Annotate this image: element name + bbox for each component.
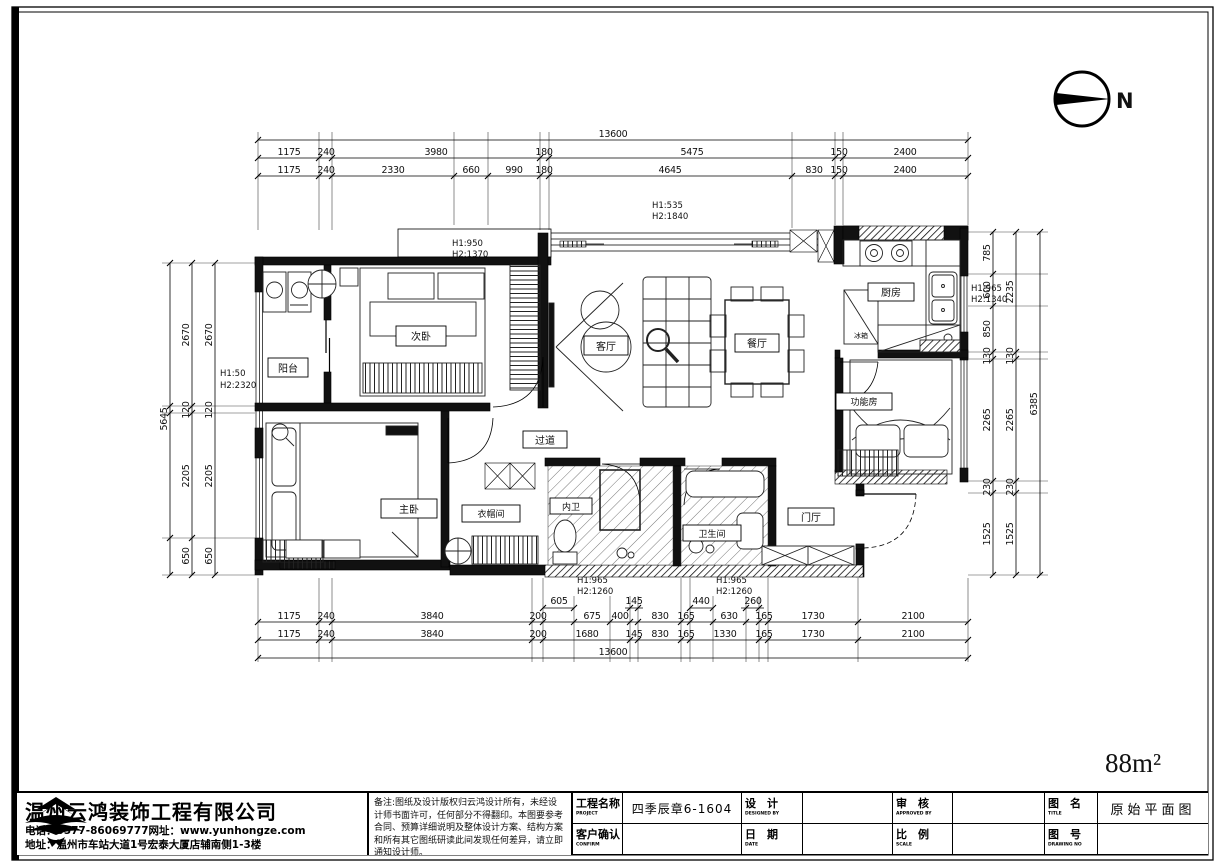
svg-text:850: 850	[982, 320, 993, 337]
svg-text:2205: 2205	[204, 464, 215, 487]
confirm-label-cell: 客户确认CONFIRM	[573, 824, 623, 855]
svg-text:H1:950: H1:950	[452, 239, 483, 249]
svg-text:1730: 1730	[802, 629, 825, 640]
svg-text:2670: 2670	[204, 323, 215, 346]
svg-text:主卧: 主卧	[399, 503, 419, 516]
drawno-value-cell	[1098, 824, 1208, 855]
svg-text:1525: 1525	[1005, 522, 1016, 545]
svg-text:1175: 1175	[278, 165, 301, 176]
svg-text:1175: 1175	[278, 147, 301, 158]
svg-text:1680: 1680	[576, 629, 599, 640]
title-block-grid: 工程名称PROJECT 四季辰章6-1604 设 计DESIGNED BY 审 …	[573, 793, 1208, 855]
svg-text:过道: 过道	[535, 434, 555, 447]
svg-text:650: 650	[181, 547, 192, 564]
svg-text:H2:2320: H2:2320	[220, 381, 256, 391]
svg-text:H2:1260: H2:1260	[577, 587, 613, 597]
svg-text:功能房: 功能房	[850, 396, 877, 408]
north-label: N	[1116, 89, 1134, 113]
svg-text:餐厅: 餐厅	[747, 337, 767, 350]
design-label-cell: 设 计DESIGNED BY	[742, 793, 803, 824]
svg-text:1175: 1175	[278, 611, 301, 622]
svg-text:165: 165	[755, 611, 772, 622]
magnifier-icon	[647, 329, 678, 362]
dim-top-total: 13600	[599, 129, 628, 140]
entry-door-swing	[864, 494, 916, 548]
project-value-cell: 四季辰章6-1604	[623, 793, 742, 824]
tv-unit	[549, 303, 554, 387]
svg-text:2330: 2330	[382, 165, 405, 176]
svg-text:440: 440	[692, 596, 709, 607]
svg-text:830: 830	[805, 165, 822, 176]
room-label-master: 主卧	[381, 499, 437, 518]
svg-text:240: 240	[317, 611, 334, 622]
svg-text:H1:965: H1:965	[971, 284, 1002, 294]
svg-text:150: 150	[830, 165, 847, 176]
svg-text:厨房: 厨房	[881, 286, 901, 299]
svg-text:1175: 1175	[278, 629, 301, 640]
svg-text:200: 200	[529, 629, 546, 640]
svg-text:2265: 2265	[1005, 408, 1016, 431]
room-label-foyer: 门厅	[788, 508, 834, 525]
svg-text:客厅: 客厅	[596, 340, 616, 353]
cloakroom-fixtures	[445, 536, 538, 564]
svg-text:130: 130	[1005, 347, 1016, 364]
room-labels: 阳台 次卧 客厅 餐厅 厨房 冰箱 功能房 过道 主卧 衣帽间 内卫 卫生间 门…	[268, 283, 914, 541]
svg-text:675: 675	[583, 611, 600, 622]
svg-text:145: 145	[625, 596, 642, 607]
drawing-sheet: N 13600 1175240 3980180 5475150 2400 117…	[0, 0, 1226, 867]
living-room-furniture	[549, 277, 711, 411]
scale-value-cell	[953, 824, 1045, 855]
company-logo	[17, 793, 95, 849]
svg-text:1525: 1525	[982, 522, 993, 545]
svg-text:120: 120	[181, 401, 192, 418]
svg-text:3840: 3840	[421, 629, 444, 640]
title-value-cell: 原始平面图	[1098, 793, 1208, 824]
svg-text:次卧: 次卧	[411, 330, 431, 343]
svg-text:165: 165	[677, 629, 694, 640]
room-label-bathroom: 卫生间	[683, 525, 741, 541]
date-label-cell: 日 期DATE	[742, 824, 803, 855]
room-label-kitchen: 厨房	[868, 283, 914, 301]
approve-label-cell: 审 核APPROVED BY	[893, 793, 953, 824]
svg-text:230: 230	[1005, 478, 1016, 495]
svg-text:门厅: 门厅	[801, 511, 821, 524]
svg-text:180: 180	[535, 165, 552, 176]
svg-text:165: 165	[677, 611, 694, 622]
svg-text:3980: 3980	[425, 147, 448, 158]
svg-text:H1:535: H1:535	[652, 201, 683, 211]
svg-text:H1:965: H1:965	[577, 576, 608, 586]
project-label-cell: 工程名称PROJECT	[573, 793, 623, 824]
drawing-notes: 备注:图纸及设计版权归云鸿设计所有，未经设计师书面许可，任何部分不得翻印。本图要…	[367, 793, 573, 855]
svg-text:180: 180	[535, 147, 552, 158]
room-label-dining: 餐厅	[735, 334, 779, 352]
svg-text:2400: 2400	[894, 147, 917, 158]
room-label-master-bath: 内卫	[550, 498, 592, 514]
svg-text:5475: 5475	[681, 147, 704, 158]
room-label-balcony: 阳台	[268, 358, 308, 377]
scale-label-cell: 比 例SCALE	[893, 824, 953, 855]
svg-text:605: 605	[550, 596, 567, 607]
room-label-bedroom2: 次卧	[396, 326, 446, 346]
master-bed	[266, 423, 418, 558]
svg-text:165: 165	[755, 629, 772, 640]
svg-text:2265: 2265	[982, 408, 993, 431]
svg-text:240: 240	[317, 629, 334, 640]
bedroom2-wardrobe	[510, 265, 540, 390]
svg-text:2100: 2100	[902, 629, 925, 640]
drawno-label-cell: 图 号DRAWING NO	[1045, 824, 1098, 855]
svg-text:785: 785	[982, 244, 993, 261]
svg-text:H2:1260: H2:1260	[716, 587, 752, 597]
svg-text:830: 830	[651, 629, 668, 640]
svg-text:145: 145	[625, 629, 642, 640]
floor-plan-canvas: N 13600 1175240 3980180 5475150 2400 117…	[0, 0, 1226, 867]
confirm-value-cell	[623, 824, 742, 855]
room-label-function: 功能房	[836, 393, 892, 410]
svg-text:2205: 2205	[181, 464, 192, 487]
svg-text:1730: 1730	[802, 611, 825, 622]
sofa	[643, 277, 711, 407]
foyer-cabinet	[762, 546, 854, 565]
approve-value-cell	[953, 793, 1045, 824]
svg-text:卫生间: 卫生间	[698, 528, 725, 540]
svg-text:240: 240	[317, 147, 334, 158]
svg-text:260: 260	[744, 596, 761, 607]
dim-left-total: 5645	[159, 407, 170, 430]
fridge-label: 冰箱	[854, 331, 868, 340]
svg-text:830: 830	[651, 611, 668, 622]
room-label-cloakroom: 衣帽间	[462, 505, 520, 522]
svg-text:650: 650	[204, 547, 215, 564]
company-section: 温州云鸿装饰工程有限公司 电话：0577-86069777网址：www.yunh…	[17, 793, 367, 855]
north-compass: N	[1055, 72, 1134, 126]
dim-right-total: 6385	[1029, 392, 1040, 415]
svg-text:衣帽间: 衣帽间	[477, 508, 504, 520]
area-label: 88m²	[1105, 748, 1161, 778]
room-label-corridor: 过道	[523, 431, 567, 448]
svg-text:4645: 4645	[659, 165, 682, 176]
titlename-label-cell: 图 名TITLE	[1045, 793, 1098, 824]
room-label-living: 客厅	[584, 336, 628, 355]
svg-text:2100: 2100	[902, 611, 925, 622]
svg-text:2400: 2400	[894, 165, 917, 176]
function-room-bed	[838, 360, 952, 476]
svg-text:3840: 3840	[421, 611, 444, 622]
svg-text:130: 130	[982, 347, 993, 364]
svg-text:H2:1340: H2:1340	[971, 295, 1007, 305]
svg-text:H1:965: H1:965	[716, 576, 747, 586]
svg-text:内卫: 内卫	[562, 501, 580, 513]
svg-text:990: 990	[505, 165, 522, 176]
svg-text:240: 240	[317, 165, 334, 176]
svg-text:120: 120	[204, 401, 215, 418]
svg-text:400: 400	[611, 611, 628, 622]
svg-text:H1:50: H1:50	[220, 369, 245, 379]
master-door	[448, 418, 493, 463]
svg-text:660: 660	[462, 165, 479, 176]
design-value-cell	[803, 793, 893, 824]
dim-bottom-total: 13600	[599, 647, 628, 658]
compass-needle-icon	[1056, 93, 1110, 105]
date-value-cell	[803, 824, 893, 855]
svg-text:H2:1840: H2:1840	[652, 212, 688, 222]
title-block: 温州云鸿装饰工程有限公司 电话：0577-86069777网址：www.yunh…	[17, 791, 1208, 855]
svg-text:2670: 2670	[181, 323, 192, 346]
svg-text:阳台: 阳台	[278, 362, 298, 375]
svg-text:630: 630	[720, 611, 737, 622]
svg-text:200: 200	[529, 611, 546, 622]
svg-text:1330: 1330	[714, 629, 737, 640]
svg-text:230: 230	[982, 478, 993, 495]
svg-text:150: 150	[830, 147, 847, 158]
